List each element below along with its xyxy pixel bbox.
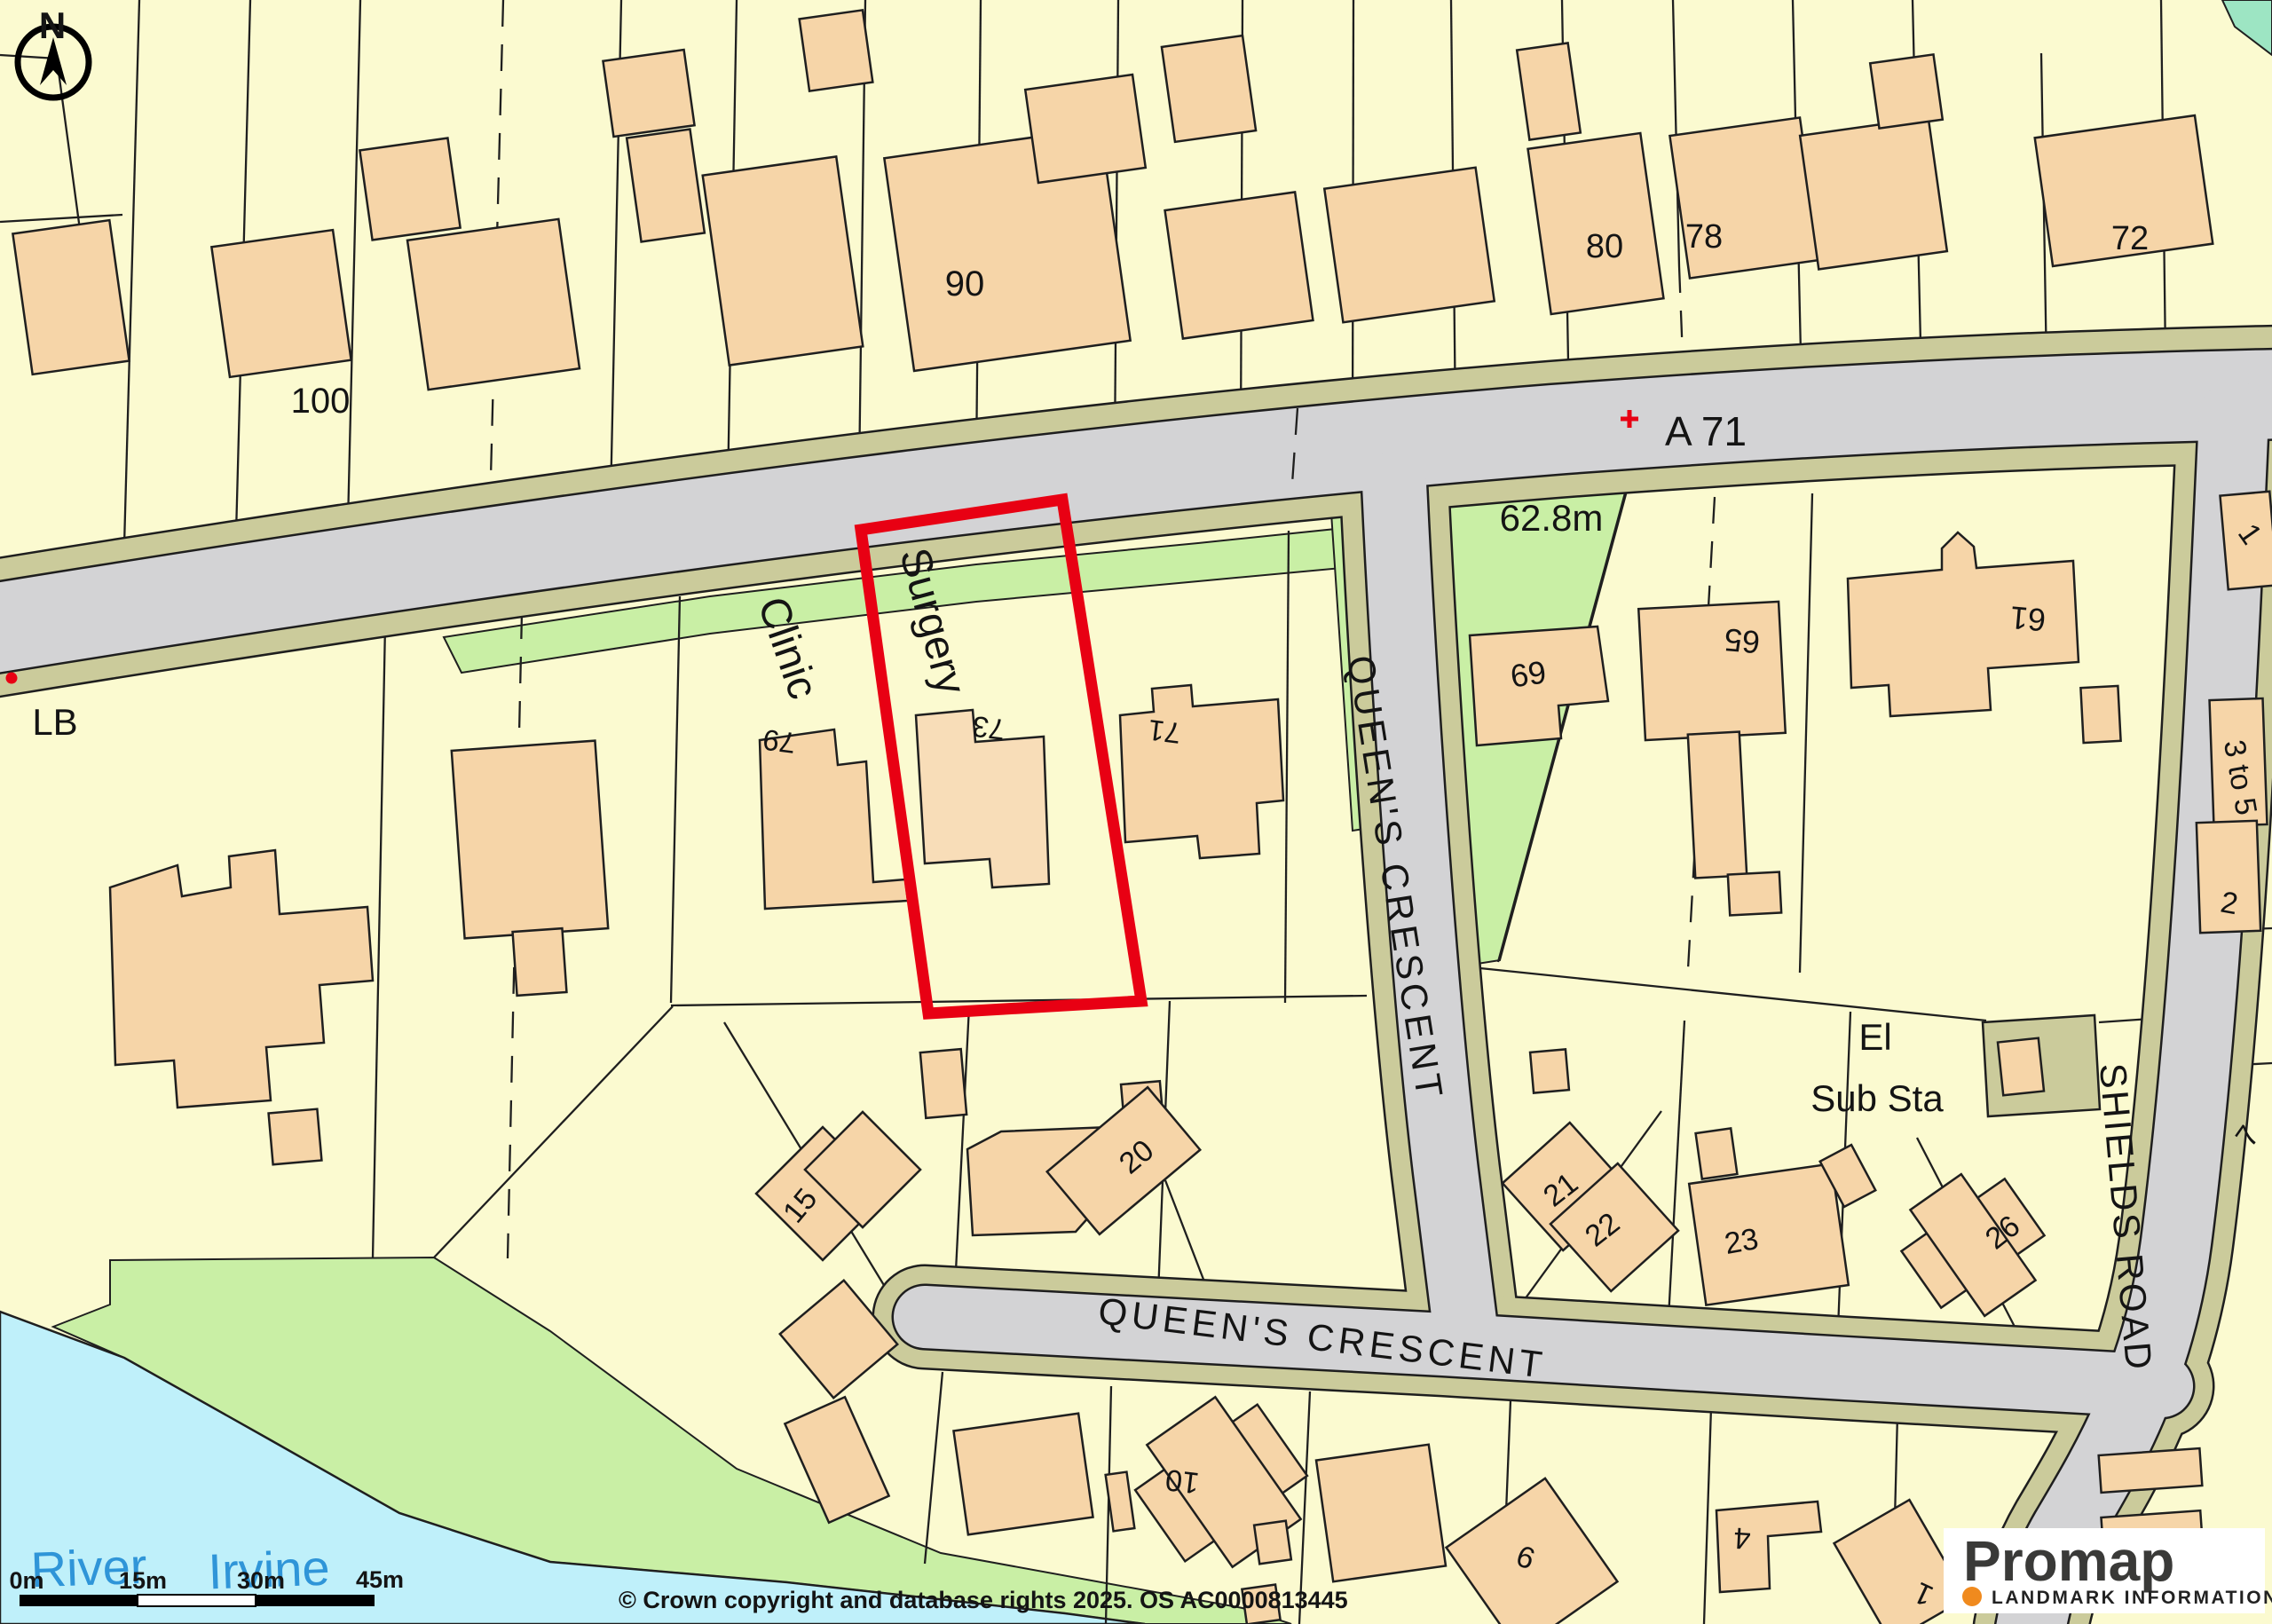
scale-bar-segment — [256, 1595, 375, 1606]
plot-number-69: 69 — [1508, 653, 1548, 694]
building — [269, 1109, 322, 1165]
plot-number-65: 65 — [1723, 621, 1761, 660]
road-label-a71: A 71 — [1665, 408, 1747, 454]
plot-number-79: 79 — [761, 723, 797, 760]
lb-label: LB — [32, 701, 77, 743]
building — [2080, 686, 2120, 743]
plot-number-100: 100 — [291, 382, 351, 421]
benchmark-dot-icon — [6, 673, 18, 684]
building-65 — [1638, 602, 1786, 740]
building — [407, 219, 580, 390]
building — [1728, 872, 1781, 916]
plot-number-23: 23 — [1722, 1222, 1761, 1261]
scale-label-0m: 0m — [9, 1567, 43, 1594]
building — [953, 1414, 1093, 1535]
building — [2099, 1448, 2203, 1493]
building — [1316, 1445, 1446, 1581]
plot-number-10: 10 — [1164, 1462, 1201, 1500]
building — [12, 220, 129, 374]
scale-label-45m: 45m — [356, 1566, 404, 1593]
copyright-text: © Crown copyright and database rights 20… — [619, 1587, 1348, 1613]
logo-brand-text: Promap — [1963, 1529, 2174, 1593]
plot-number-80: 80 — [1586, 228, 1623, 265]
logo-tagline-text: LANDMARK INFORMATION — [1992, 1588, 2272, 1608]
plot-number-90: 90 — [945, 264, 985, 304]
building — [1688, 732, 1747, 879]
compass-north-letter: N — [39, 4, 66, 46]
building — [1696, 1128, 1738, 1179]
scale-label-15m: 15m — [119, 1567, 167, 1594]
building — [1530, 1049, 1569, 1092]
building — [703, 156, 864, 365]
substa-label: Sub Sta — [1810, 1077, 1944, 1119]
plot-number-71: 71 — [1146, 713, 1182, 750]
building-23 — [1689, 1163, 1849, 1305]
logo-dot-icon — [1962, 1587, 1982, 1606]
plot-number-78: 78 — [1685, 218, 1723, 256]
promap-logo: Promap LANDMARK INFORMATION — [1944, 1528, 2272, 1613]
building — [513, 928, 567, 996]
building — [1800, 118, 1947, 270]
building — [1162, 35, 1256, 142]
scale-bar-segment — [138, 1595, 256, 1606]
spot-height-label: 62.8m — [1500, 497, 1604, 539]
plot-number-73: 73 — [970, 710, 1006, 746]
building — [359, 138, 460, 240]
building — [627, 130, 705, 242]
building — [452, 741, 608, 939]
map-canvas[interactable]: 100 90 80 78 72 A 71 62.8m LB Clinic Sur… — [0, 0, 2272, 1624]
plot-number-72: 72 — [2111, 220, 2149, 257]
scale-label-30m: 30m — [237, 1567, 285, 1594]
building — [1254, 1521, 1291, 1565]
el-label: El — [1858, 1016, 1891, 1058]
building — [1870, 54, 1943, 128]
building-el-substa — [1998, 1038, 2044, 1095]
plot-number-4: 4 — [1733, 1521, 1752, 1556]
building — [920, 1049, 966, 1118]
building — [1025, 75, 1146, 183]
map-stage: 100 90 80 78 72 A 71 62.8m LB Clinic Sur… — [0, 0, 2272, 1624]
building — [1165, 192, 1313, 338]
building — [800, 10, 873, 91]
building-80 — [1528, 133, 1664, 314]
scale-bar-segment — [20, 1595, 138, 1606]
building — [1324, 168, 1494, 322]
building — [603, 50, 694, 137]
building — [211, 230, 351, 377]
building — [1517, 43, 1581, 139]
plot-number-61: 61 — [2008, 599, 2047, 638]
